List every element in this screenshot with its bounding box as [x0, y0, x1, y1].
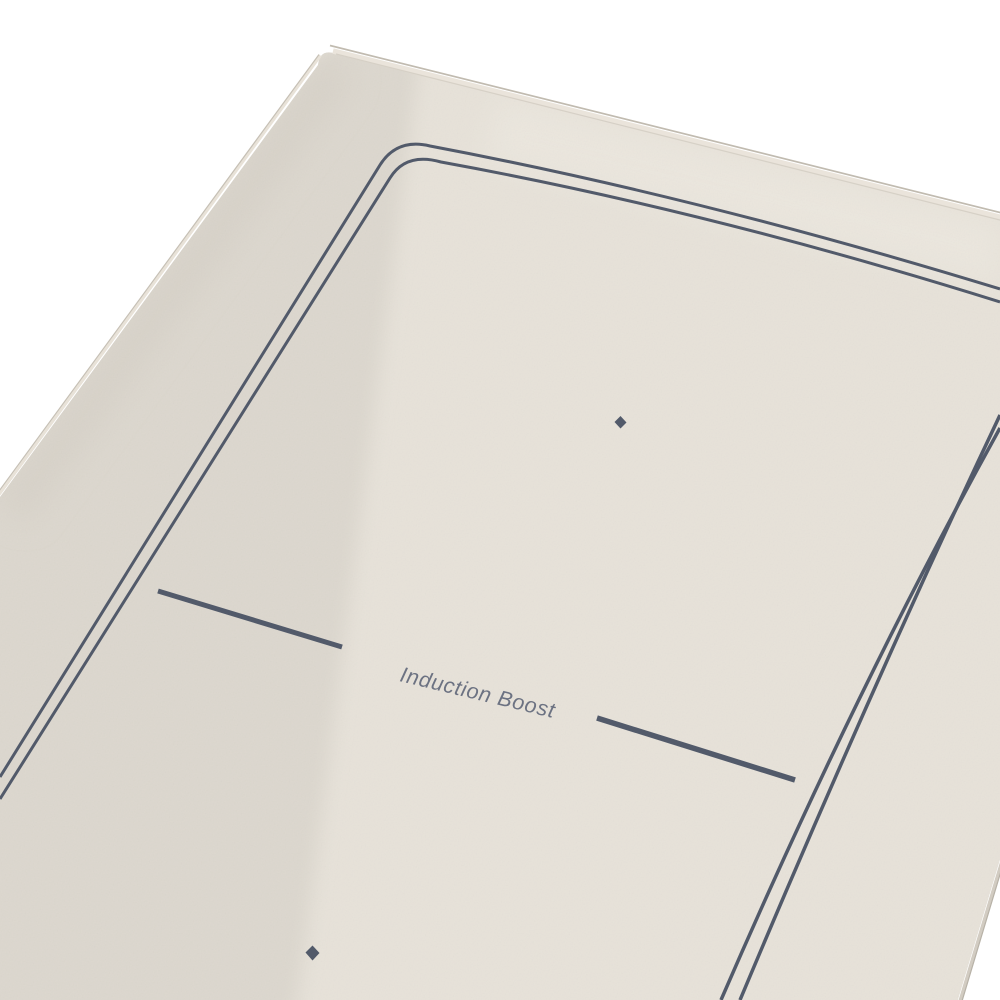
product-image-canvas: Induction Boost: [0, 0, 1000, 1000]
cooktop-product-image: Induction Boost: [0, 0, 1000, 1000]
